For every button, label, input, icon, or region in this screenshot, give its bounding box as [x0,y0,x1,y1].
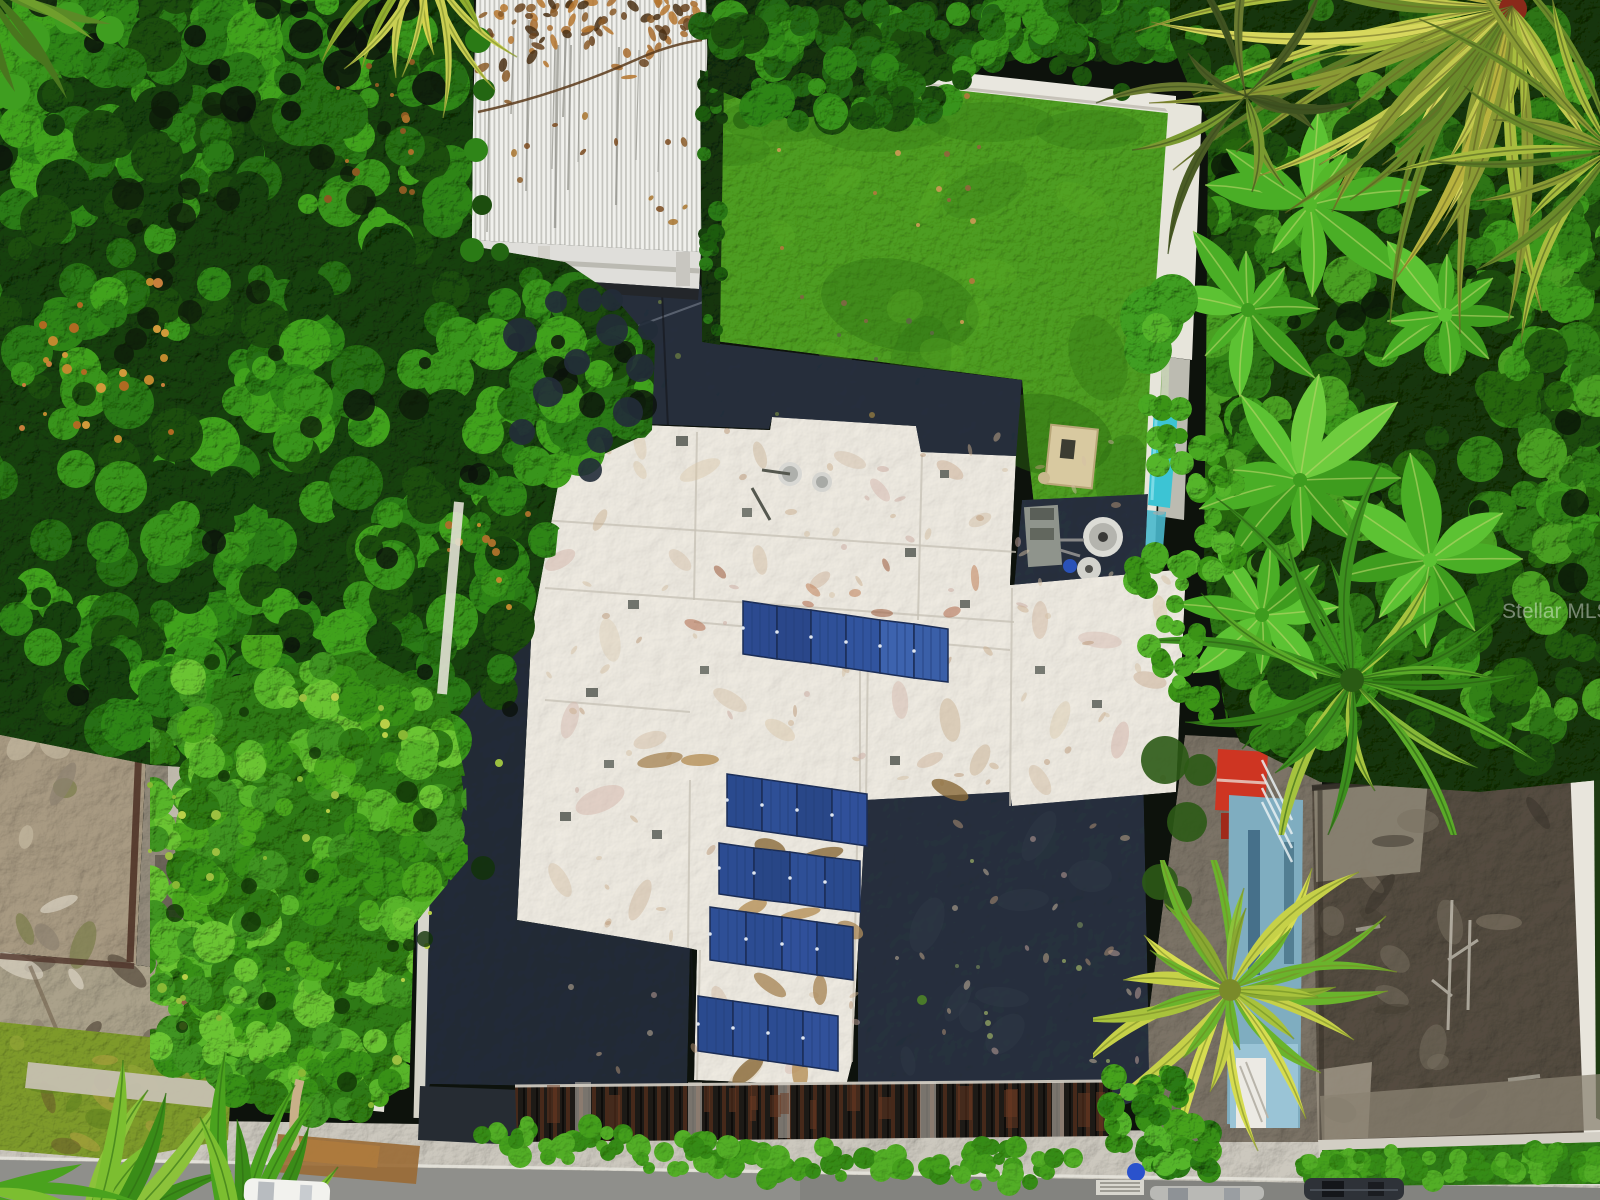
svg-text:Stellar MLS: Stellar MLS [1502,600,1600,623]
